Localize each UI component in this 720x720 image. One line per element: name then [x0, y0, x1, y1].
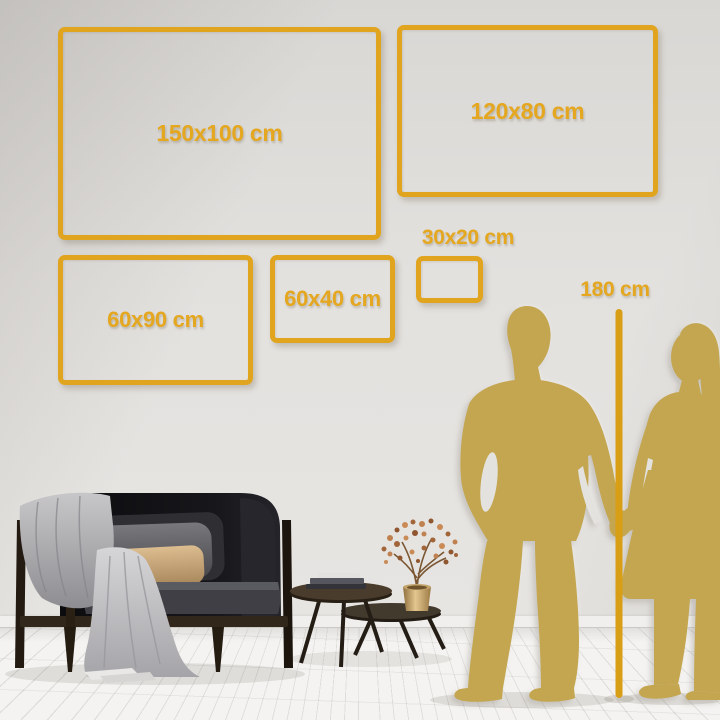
man-head	[507, 306, 550, 381]
size-box-120x80: 120x80 cm	[397, 25, 658, 197]
size-box-150x100: 150x100 cm	[58, 27, 381, 240]
sofa	[15, 493, 293, 683]
man-torso	[460, 379, 626, 541]
size-guide-scene: 150x100 cm 120x80 cm 60x90 cm 60x40 cm 3…	[0, 0, 720, 720]
size-label-30x20: 30x20 cm	[408, 226, 528, 250]
size-label-60x90: 60x90 cm	[107, 307, 204, 333]
man-silhouette	[454, 306, 637, 702]
book	[310, 578, 364, 584]
size-label-120x80: 120x80 cm	[471, 98, 585, 125]
branch-stems	[394, 538, 446, 588]
man-foot	[529, 688, 575, 702]
book	[306, 584, 366, 589]
height-label-180cm: 180 cm	[563, 278, 667, 302]
size-label-60x40: 60x40 cm	[284, 286, 381, 312]
size-box-30x20	[416, 256, 483, 303]
book	[318, 573, 360, 578]
man-foot	[454, 688, 503, 702]
size-box-60x40: 60x40 cm	[270, 255, 395, 343]
size-box-60x90: 60x90 cm	[58, 255, 253, 385]
blossoms	[382, 519, 459, 565]
couple-silhouettes	[454, 306, 720, 702]
height-ruler-line	[616, 309, 623, 698]
size-label-150x100: 150x100 cm	[156, 120, 282, 147]
woman-silhouette	[618, 323, 720, 700]
gold-vase	[403, 587, 431, 611]
vase-with-branches	[382, 519, 459, 612]
